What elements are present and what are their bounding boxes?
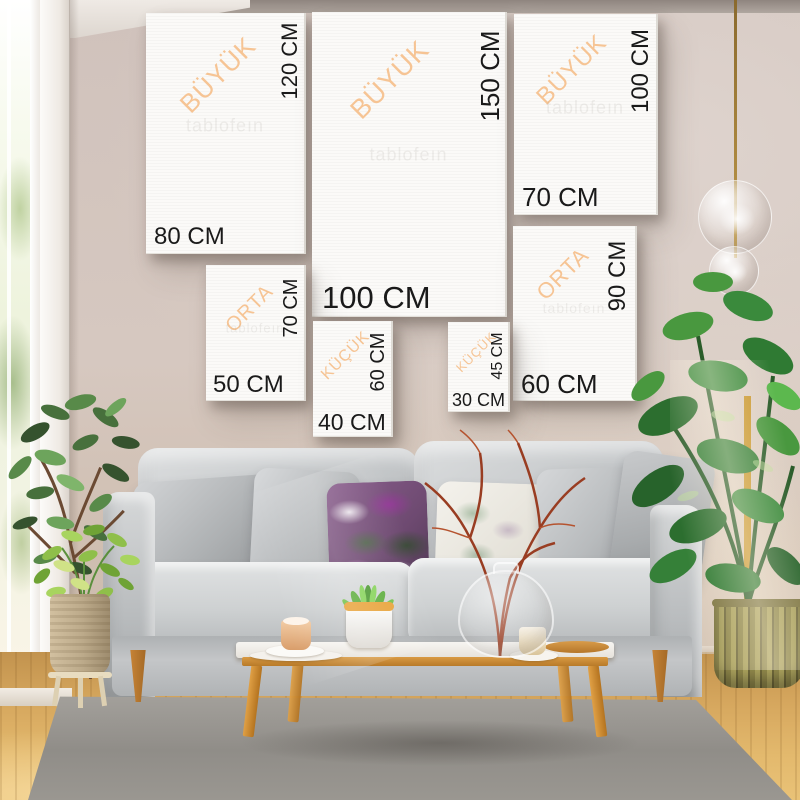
peach-cup (281, 620, 311, 650)
height-dimension-label: 90 CM (606, 241, 630, 312)
width-dimension-label: 40 CM (318, 411, 386, 434)
woven-planter (50, 594, 110, 676)
watermark: tablofeın (543, 300, 606, 316)
watermark: tablofeın (546, 98, 624, 119)
succulent-pot (346, 606, 392, 648)
canvas-80x120cm: BÜYÜK 120 CM 80 CM tablofeın (146, 13, 306, 254)
width-dimension-label: 30 CM (452, 391, 505, 409)
monstera-plant (628, 266, 800, 618)
pendant-glass-sphere-large (698, 180, 772, 254)
size-category-label: KÜÇÜK (318, 328, 374, 384)
canvas-60x90cm: ORTA 90 CM 60 CM tablofeın (513, 226, 637, 401)
canvas-40x60cm: KÜÇÜK 60 CM 40 CM (313, 321, 393, 437)
size-category-label: BÜYÜK (344, 34, 435, 125)
canvas-30x45cm: KÜÇÜK 45 CM 30 CM (448, 322, 510, 412)
living-room-size-guide-photo: BÜYÜK 120 CM 80 CM tablofeın BÜYÜK 150 C… (0, 0, 800, 800)
width-dimension-label: 60 CM (521, 371, 598, 397)
watermark: tablofeın (369, 144, 447, 165)
size-category-label: BÜYÜK (174, 31, 263, 120)
stool-leg (78, 678, 83, 708)
canvas-100x150cm: BÜYÜK 150 CM 100 CM tablofeın (312, 12, 507, 317)
table-shadow (240, 720, 640, 766)
watermark: tablofeın (186, 115, 264, 136)
height-dimension-label: 100 CM (629, 29, 653, 113)
width-dimension-label: 80 CM (154, 225, 225, 249)
size-category-label: ORTA (532, 243, 595, 306)
canvas-70x100cm: BÜYÜK 100 CM 70 CM tablofeın (514, 14, 658, 215)
canvas-50x70cm: ORTA 70 CM 50 CM tablofeın (206, 265, 306, 401)
height-dimension-label: 150 CM (477, 30, 503, 121)
height-dimension-label: 60 CM (368, 333, 388, 392)
height-dimension-label: 120 CM (279, 22, 301, 99)
width-dimension-label: 70 CM (522, 184, 599, 210)
glass-vase (458, 570, 554, 658)
watermark: tablofeın (226, 321, 285, 336)
height-dimension-label: 45 CM (490, 332, 506, 379)
width-dimension-label: 100 CM (322, 282, 431, 313)
width-dimension-label: 50 CM (213, 373, 284, 397)
ribbed-planter (714, 602, 800, 688)
